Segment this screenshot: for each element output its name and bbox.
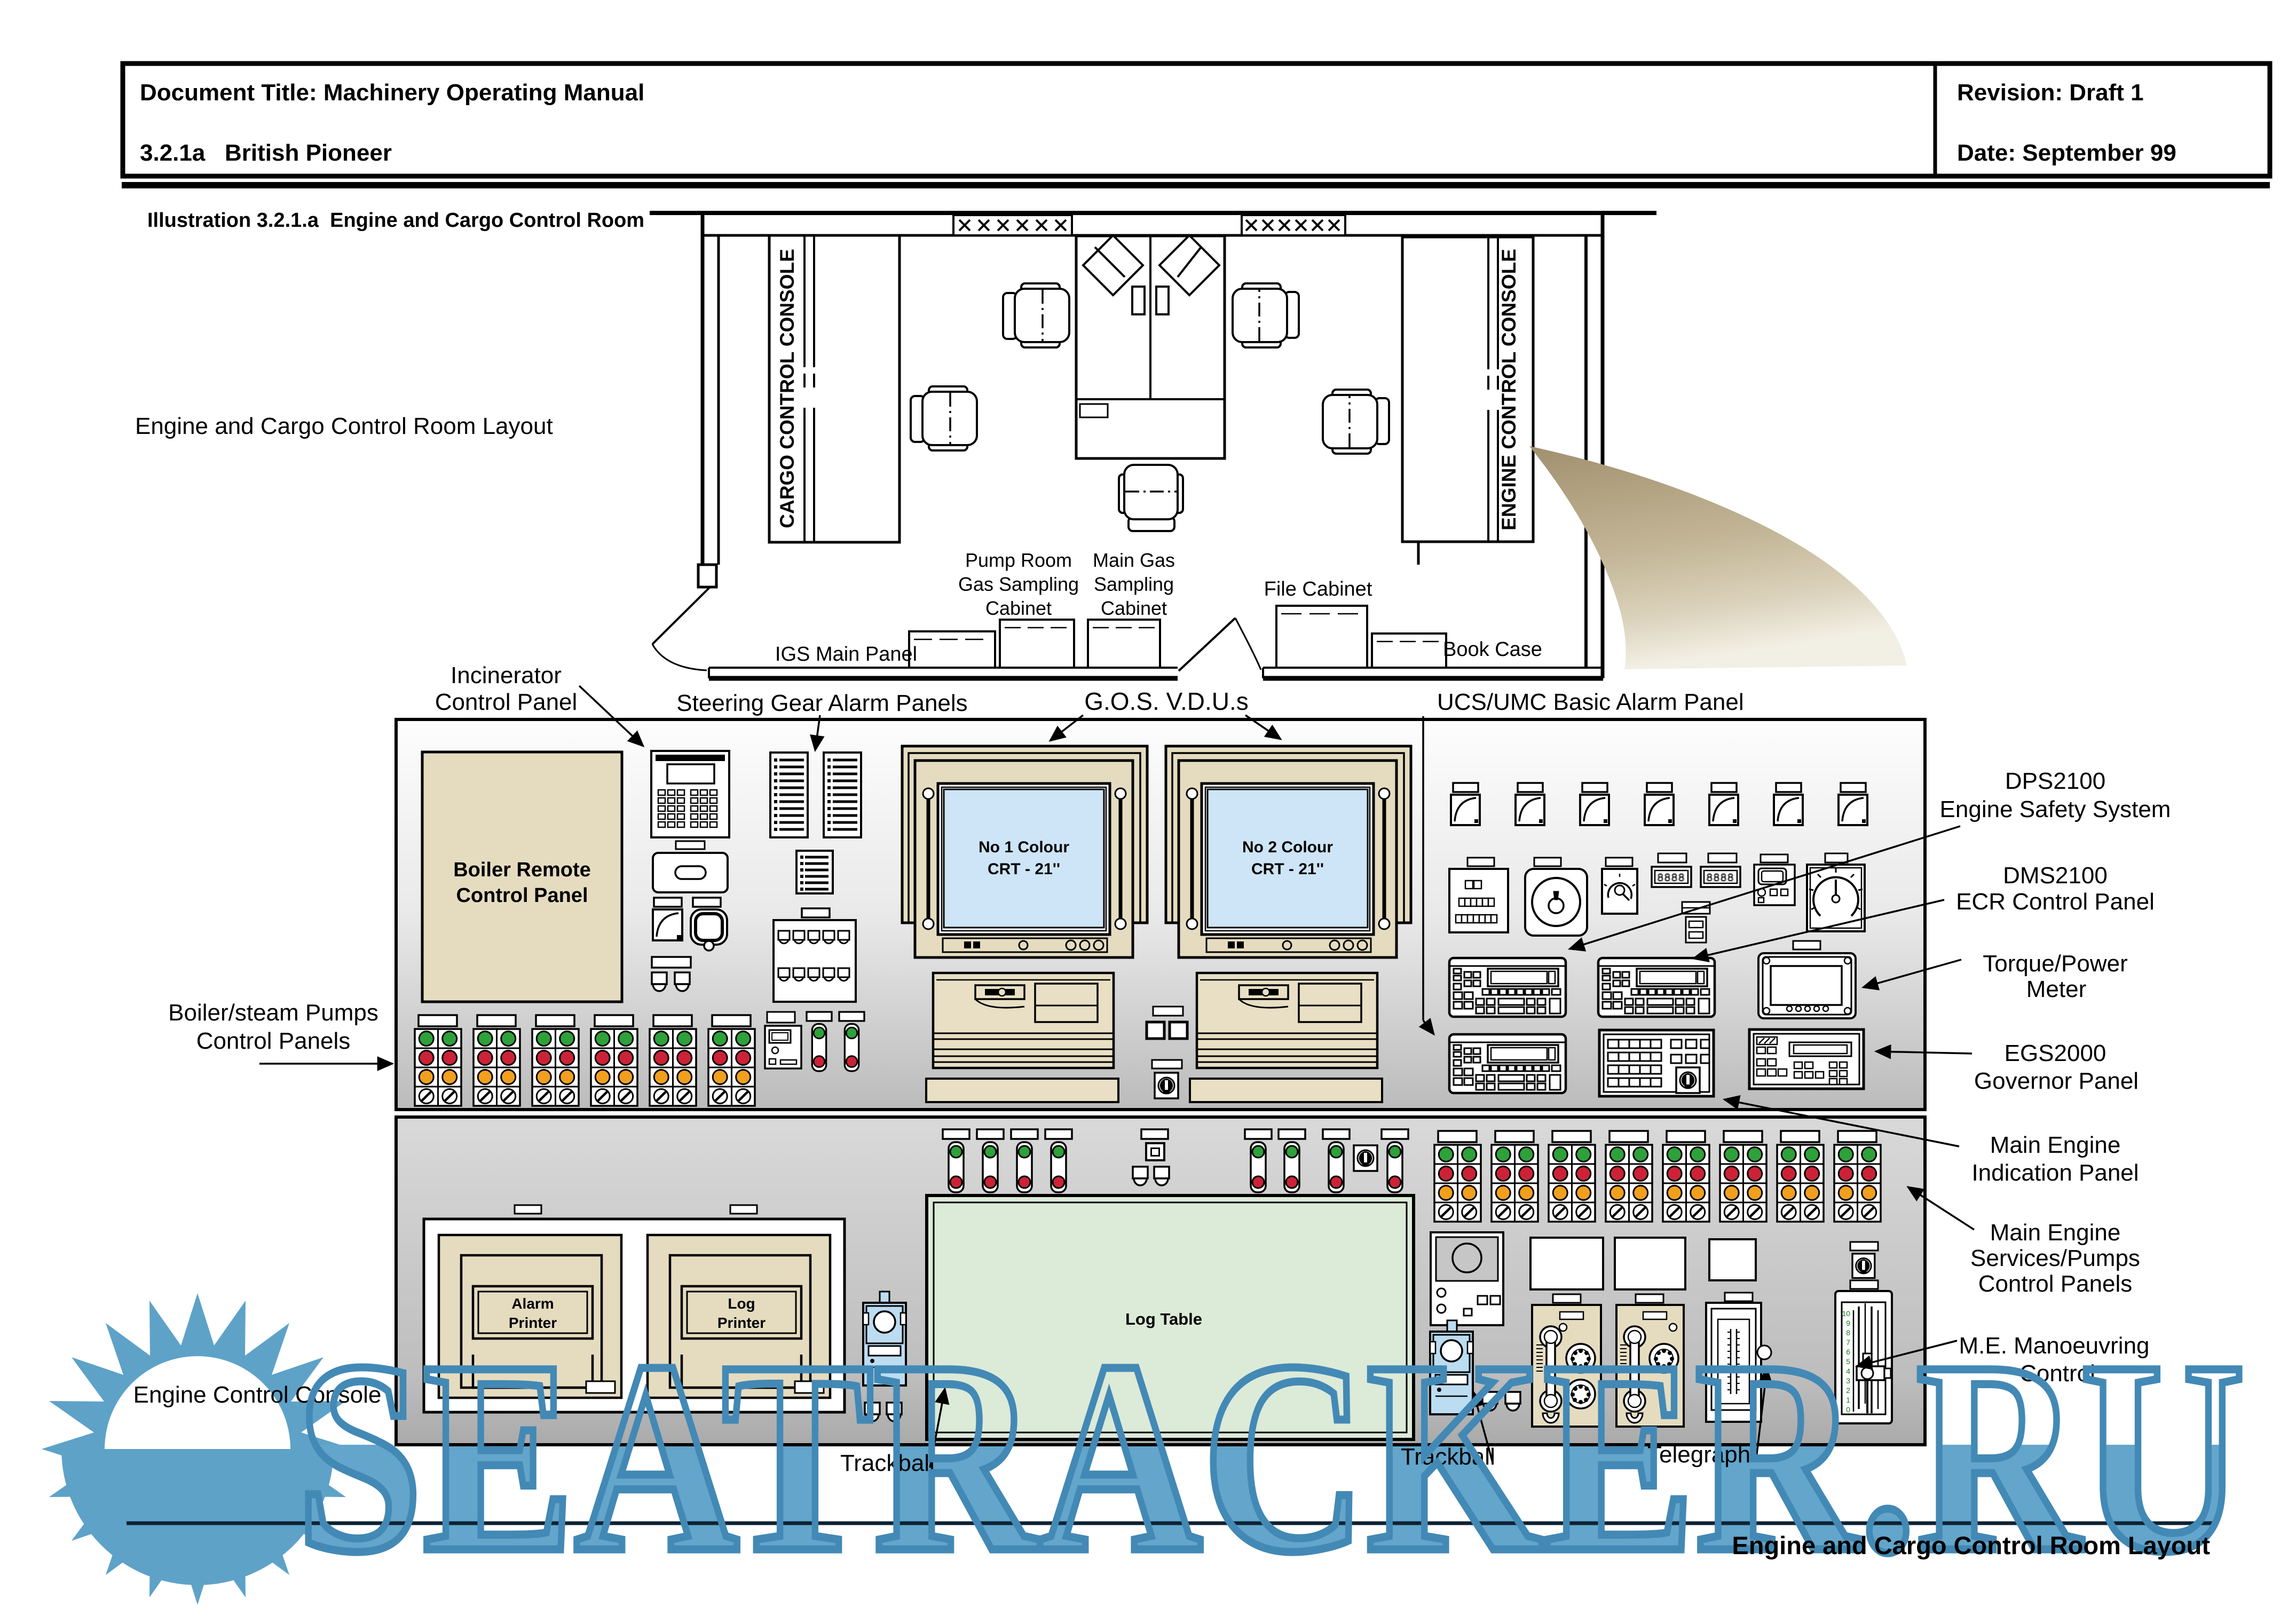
svg-text:CRT - 21'': CRT - 21'' xyxy=(988,860,1060,878)
svg-text:ECR Control Panel: ECR Control Panel xyxy=(1956,889,2155,915)
svg-text:Control Panels: Control Panels xyxy=(196,1028,351,1054)
svg-text:ENGINE CONTROL CONSOLE: ENGINE CONTROL CONSOLE xyxy=(1498,249,1520,531)
svg-text:DMS2100: DMS2100 xyxy=(2003,862,2108,889)
svg-text:3.2.1a British Pioneer: 3.2.1a British Pioneer xyxy=(140,140,392,166)
svg-text:File Cabinet: File Cabinet xyxy=(1264,578,1372,600)
svg-text:Date: September 99: Date: September 99 xyxy=(1957,140,2176,166)
svg-text:Gas Sampling: Gas Sampling xyxy=(958,573,1079,595)
svg-text:No 2 Colour: No 2 Colour xyxy=(1242,838,1333,856)
svg-text:Engine and Cargo Control Room: Engine and Cargo Control Room Layout xyxy=(135,413,553,439)
svg-text:Steering Gear Alarm Panels: Steering Gear Alarm Panels xyxy=(676,690,967,716)
svg-text:Sampling: Sampling xyxy=(1094,573,1174,595)
svg-text:Revision: Draft 1: Revision: Draft 1 xyxy=(1957,80,2144,106)
svg-text:CARGO CONTROL CONSOLE: CARGO CONTROL CONSOLE xyxy=(776,249,798,528)
svg-text:DPS2100: DPS2100 xyxy=(2005,768,2105,794)
svg-text:Incinerator: Incinerator xyxy=(451,662,562,688)
svg-text:EGS2000: EGS2000 xyxy=(2005,1040,2106,1066)
svg-text:Engine and Cargo Control Room: Engine and Cargo Control Room Layout xyxy=(1732,1531,2210,1559)
svg-text:Main Gas: Main Gas xyxy=(1093,549,1175,571)
svg-text:Pump Room: Pump Room xyxy=(965,549,1072,571)
svg-text:Main Engine: Main Engine xyxy=(1990,1220,2121,1246)
svg-text:Main Engine: Main Engine xyxy=(1990,1132,2121,1158)
svg-text:CRT - 21'': CRT - 21'' xyxy=(1251,860,1324,878)
svg-text:Torque/Power: Torque/Power xyxy=(1983,951,2127,977)
svg-text:8888: 8888 xyxy=(1707,872,1735,884)
svg-text:Governor Panel: Governor Panel xyxy=(1974,1068,2139,1094)
svg-text:Services/Pumps: Services/Pumps xyxy=(1970,1245,2140,1271)
svg-text:Boiler/steam Pumps: Boiler/steam Pumps xyxy=(168,1000,378,1026)
svg-text:Cabinet: Cabinet xyxy=(985,597,1052,619)
svg-text:G.O.S. V.D.U.s: G.O.S. V.D.U.s xyxy=(1084,687,1249,715)
svg-text:Cabinet: Cabinet xyxy=(1101,597,1167,619)
svg-text:Control Panel: Control Panel xyxy=(435,689,578,715)
svg-text:Illustration 3.2.1.a Engine a: Illustration 3.2.1.a Engine and Cargo Co… xyxy=(147,209,644,232)
svg-text:Indication Panel: Indication Panel xyxy=(1971,1160,2139,1186)
svg-text:No 1 Colour: No 1 Colour xyxy=(979,838,1069,856)
svg-text:Control Panel: Control Panel xyxy=(456,884,588,907)
svg-text:Book Case: Book Case xyxy=(1443,638,1542,661)
svg-text:IGS Main Panel: IGS Main Panel xyxy=(775,643,917,666)
svg-text:Document Title: Machinery Oper: Document Title: Machinery Operating Manu… xyxy=(140,80,644,106)
svg-text:UCS/UMC Basic Alarm Panel: UCS/UMC Basic Alarm Panel xyxy=(1437,689,1744,715)
svg-text:Control Panels: Control Panels xyxy=(1978,1271,2133,1297)
svg-text:Meter: Meter xyxy=(2026,976,2086,1002)
svg-text:Boiler Remote: Boiler Remote xyxy=(453,859,591,881)
svg-text:8888: 8888 xyxy=(1658,872,1686,884)
svg-text:SEATRACKER.RU: SEATRACKER.RU xyxy=(296,1305,2245,1609)
svg-text:Engine Safety System: Engine Safety System xyxy=(1940,796,2171,822)
